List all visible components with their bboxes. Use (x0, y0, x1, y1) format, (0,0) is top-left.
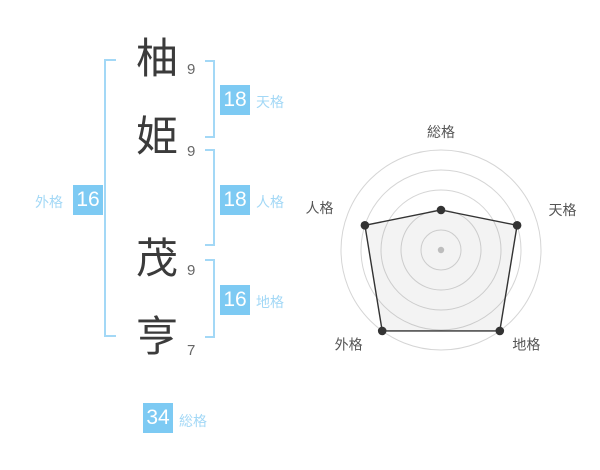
radar-axis-label: 天格 (549, 202, 577, 218)
jinkaku-bracket (205, 149, 215, 246)
radar-axis-label: 外格 (335, 336, 363, 352)
radar-data-point (513, 221, 522, 230)
name-character: 柚 (134, 37, 180, 81)
radar-data-point (496, 327, 505, 336)
radar-center-dot (438, 247, 444, 253)
soukaku-value-badge: 34 (143, 403, 173, 433)
gaikaku-value-badge: 16 (73, 185, 103, 215)
radar-chart-panel: 総格天格地格外格人格 (300, 98, 590, 378)
jinkaku-value-badge: 18 (220, 185, 250, 215)
tenkaku-value-badge: 18 (220, 85, 250, 115)
stroke-count: 9 (187, 144, 207, 160)
chikaku-value-badge: 16 (220, 285, 250, 315)
stroke-count: 7 (187, 343, 207, 359)
name-fortune-result-screen: 柚 姫 茂 亨 9 9 9 7 18 天格 18 人格 16 地格 外格 16 … (0, 0, 600, 470)
soukaku-label: 総格 (179, 413, 207, 429)
stroke-count: 9 (187, 62, 207, 78)
name-character: 茂 (134, 237, 180, 281)
name-character: 姫 (134, 115, 180, 159)
name-character: 亨 (134, 315, 180, 359)
radar-data-point (437, 206, 446, 215)
fortune-radar-chart: 総格天格地格外格人格 (300, 98, 590, 378)
radar-axis-label: 地格 (512, 336, 540, 352)
radar-data-polygon (365, 210, 517, 331)
chikaku-label: 地格 (256, 294, 284, 310)
radar-axis-label: 総格 (427, 124, 455, 140)
jinkaku-label: 人格 (256, 194, 284, 210)
stroke-count: 9 (187, 263, 207, 279)
gaikaku-label: 外格 (35, 194, 63, 210)
radar-data-point (378, 327, 387, 336)
radar-data-point (361, 221, 370, 230)
gaikaku-bracket (104, 59, 116, 337)
radar-axis-label: 人格 (306, 200, 334, 216)
tenkaku-label: 天格 (256, 94, 284, 110)
